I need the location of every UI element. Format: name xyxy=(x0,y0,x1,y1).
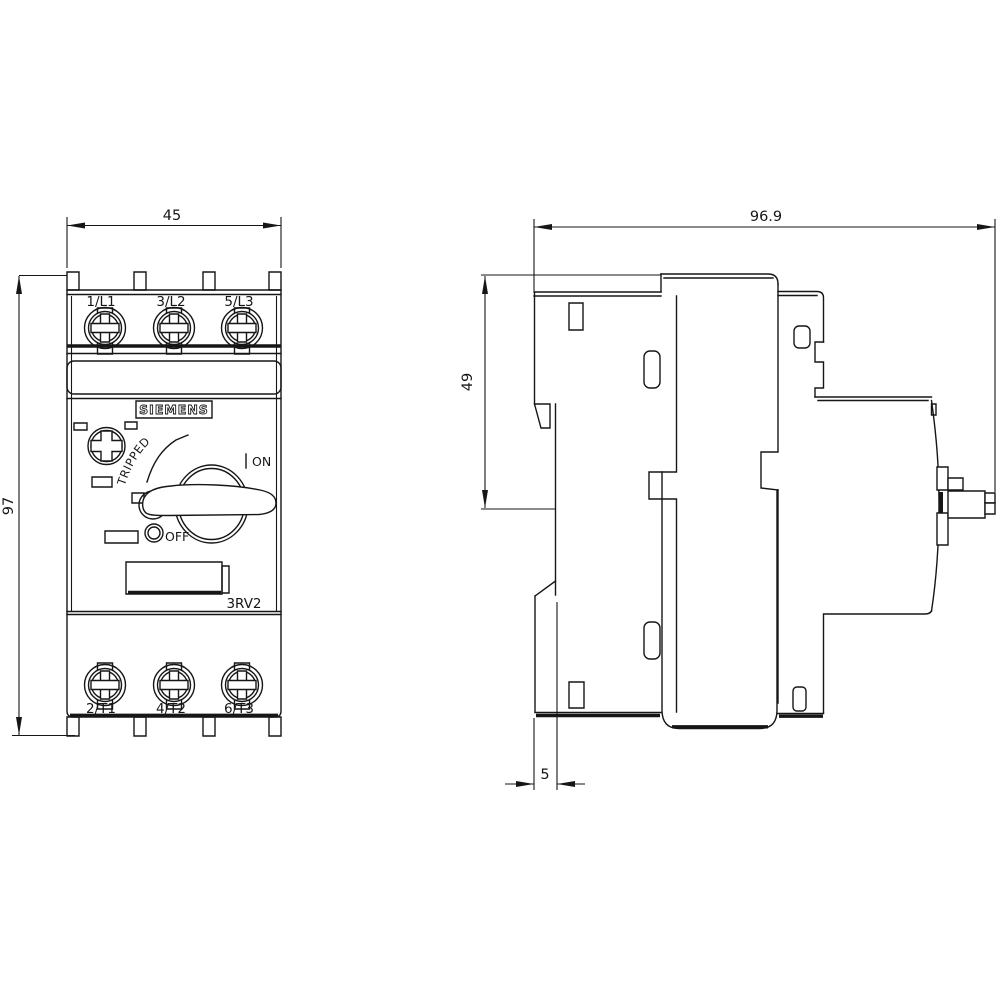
vent-slot xyxy=(644,351,660,388)
on-label: ON xyxy=(252,454,271,469)
panel-slot xyxy=(105,531,138,543)
adjustment-dial[interactable] xyxy=(88,428,125,465)
panel-slot xyxy=(74,423,87,430)
side-view: 96.9 49 5 xyxy=(460,209,995,790)
vent-slot xyxy=(569,303,583,330)
front-step-profile xyxy=(815,342,824,397)
panel-slot xyxy=(92,477,112,487)
rating-label-field xyxy=(126,562,229,594)
front-view: 45 97 1/L1 3/L2 5/L3 xyxy=(1,208,281,736)
vent-slot xyxy=(793,687,806,711)
side-front-section xyxy=(778,292,995,717)
vent-slot xyxy=(794,326,810,348)
drawing-canvas: 45 97 1/L1 3/L2 5/L3 xyxy=(0,0,1000,1000)
din-claw-upper xyxy=(535,404,551,428)
bottom-foot xyxy=(269,717,281,736)
knob-shaft-side xyxy=(937,467,995,545)
bottom-foot xyxy=(203,717,215,736)
panel-slot xyxy=(125,422,137,429)
brand-label: SIEMENS xyxy=(139,402,209,417)
on-marking: ON xyxy=(246,454,271,469)
top-tab xyxy=(134,272,146,290)
shaft-seal xyxy=(939,492,943,513)
bottom-foot xyxy=(67,717,79,736)
side-upper-dimension: 49 xyxy=(460,275,661,509)
side-depth-label: 96.9 xyxy=(750,209,782,225)
side-depth-dimension: 96.9 xyxy=(534,209,995,492)
side-middle-section xyxy=(661,274,778,729)
top-tab xyxy=(203,272,215,290)
side-rear-section xyxy=(534,292,677,716)
front-width-dimension: 45 xyxy=(67,208,281,268)
toggle-handle[interactable] xyxy=(143,485,276,516)
side-rail-dimension: 5 xyxy=(505,602,585,790)
housing-bands: SIEMENS xyxy=(67,346,281,418)
front-height-dimension: 97 xyxy=(1,276,75,736)
dimension-drawing: 45 97 1/L1 3/L2 5/L3 xyxy=(0,0,1000,1000)
bottom-foot xyxy=(134,717,146,736)
control-panel: TRIPPED ON OFF xyxy=(74,422,276,612)
front-width-label: 45 xyxy=(163,208,181,224)
side-upper-label: 49 xyxy=(460,373,476,391)
off-label: OFF xyxy=(165,529,189,544)
model-label: 3RV2 xyxy=(226,596,261,612)
front-face-curve xyxy=(932,401,940,612)
vent-slot xyxy=(644,622,660,659)
top-tab xyxy=(269,272,281,290)
vent-slot xyxy=(569,682,584,708)
front-height-label: 97 xyxy=(1,497,17,515)
rotary-knob[interactable] xyxy=(132,465,276,543)
side-rail-label: 5 xyxy=(540,767,549,783)
din-claw-lower xyxy=(535,581,556,596)
top-tab xyxy=(67,272,79,290)
